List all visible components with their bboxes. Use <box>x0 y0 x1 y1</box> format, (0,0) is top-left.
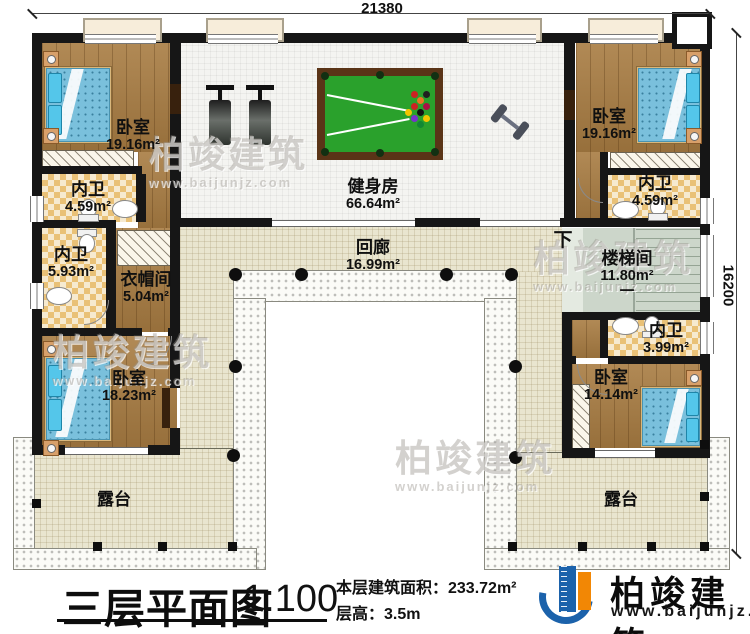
room-label-bedroom-br: 卧室14.14m² <box>584 368 638 403</box>
room-label-terrace-left: 露台 <box>97 490 131 509</box>
nightstand-tl-2 <box>43 128 59 144</box>
door-bedroom-bl <box>162 388 170 428</box>
room-label-bath-tl: 内卫4.59m² <box>65 180 111 215</box>
rail-post <box>508 542 517 551</box>
wall-gym-right <box>564 43 575 226</box>
company-logo-url: www.baijunjz.com <box>611 603 750 621</box>
column <box>505 268 518 281</box>
wall-l1 <box>32 166 142 174</box>
rail-post <box>647 542 656 551</box>
room-label-bedroom-tr: 卧室19.16m² <box>582 107 636 142</box>
closet-cloakroom <box>117 230 177 266</box>
sink-bath-ml <box>46 287 72 305</box>
sink-bath-tl <box>112 200 138 218</box>
courtyard-rail-top <box>233 270 517 302</box>
room-label-bedroom-tl: 卧室19.16m² <box>106 118 160 153</box>
column <box>295 268 308 281</box>
watermark: 柏竣建筑 www.baijunjz.com <box>148 136 308 190</box>
br-terrace-door <box>595 450 655 458</box>
terrace-left-rail-bottom <box>13 548 257 570</box>
window-left-1 <box>30 196 44 222</box>
nightstand-br-1 <box>686 370 702 386</box>
company-logo-name: 柏竣建筑 <box>610 566 750 634</box>
terrace-left-floor <box>33 448 237 550</box>
wall-stairwell-top <box>560 218 710 227</box>
courtyard-rail-left <box>233 298 266 570</box>
rail-post <box>578 542 587 551</box>
plan-title: 三层平面图 <box>62 575 272 634</box>
chimney <box>672 12 712 49</box>
rail-post <box>158 542 167 551</box>
column <box>227 449 240 462</box>
door-bedroom-tl <box>170 84 181 114</box>
room-label-cloakroom: 衣帽间5.04m² <box>121 270 172 305</box>
wall-r6 <box>562 356 576 364</box>
tank-bath-tr <box>648 213 668 221</box>
gym-sliding-door-1 <box>272 220 415 227</box>
rail-post <box>700 542 709 551</box>
wall-bl-bottom-2 <box>148 445 180 455</box>
wall-r7 <box>608 356 710 364</box>
wall-l3 <box>32 220 116 228</box>
room-label-stairwell: 楼梯间11.80m²一 <box>600 249 653 301</box>
rail-post <box>700 440 709 449</box>
courtyard-rail-right <box>484 298 517 570</box>
rail-post <box>700 492 709 501</box>
room-label-bath-ml: 内卫5.93m² <box>48 245 94 280</box>
column <box>440 268 453 281</box>
rail-post <box>93 542 102 551</box>
room-label-bath-tr: 内卫4.59m² <box>632 174 678 209</box>
column <box>229 360 242 373</box>
nightstand-bl-2 <box>43 440 59 456</box>
room-label-corridor: 回廊16.99m² <box>346 238 400 273</box>
column <box>229 268 242 281</box>
company-logo-icon <box>537 562 601 624</box>
window-left-2 <box>30 283 44 309</box>
room-label-bedroom-bl: 卧室18.23m² <box>102 369 156 404</box>
room-label-gym: 健身房66.64m² <box>346 177 400 212</box>
rail-post <box>228 542 237 551</box>
window-right-1 <box>700 198 714 224</box>
bed-br <box>640 386 702 448</box>
bay-glass-4 <box>590 34 658 44</box>
pool-table <box>317 68 443 160</box>
room-label-bath-mr: 内卫3.99m² <box>643 321 689 356</box>
stairs-down-label: 下 <box>553 230 572 251</box>
wall-gym-bottom-1 <box>180 218 272 227</box>
watermark: 柏竣建筑 www.baijunjz.com <box>395 440 555 494</box>
wall-l2 <box>136 174 146 222</box>
window-right-3 <box>700 322 714 354</box>
dim-top-label: 21380 <box>322 0 442 17</box>
floor-height-text: 层高：3.5m <box>336 600 420 624</box>
floor-area-text: 本层建筑面积：233.72m² <box>336 574 517 598</box>
bay-glass-3 <box>469 34 536 44</box>
wall-br-bottom-1 <box>562 448 595 458</box>
door-bedroom-tr <box>564 90 575 120</box>
nightstand-tr-2 <box>686 128 702 144</box>
plan-scale: 1:100 <box>243 578 338 621</box>
bl-terrace-door <box>65 447 148 455</box>
floorplan-canvas: 柏竣建筑 www.baijunjz.com 柏竣建筑 www.baijunjz.… <box>0 0 750 634</box>
nightstand-tl-1 <box>43 51 59 67</box>
wall-l4 <box>106 228 116 330</box>
dim-right-label: 16200 <box>720 256 737 316</box>
wall-gym-bottom-2 <box>415 218 480 227</box>
window-right-2 <box>700 235 714 297</box>
sink-bath-mr <box>612 317 639 335</box>
gym-sliding-door-2 <box>480 220 560 227</box>
wall-br-bottom-2 <box>655 448 710 458</box>
wall-left <box>32 33 42 455</box>
rail-post <box>32 499 41 508</box>
nightstand-tr-1 <box>686 51 702 67</box>
room-label-terrace-right: 露台 <box>604 490 638 509</box>
wall-r3 <box>562 312 710 320</box>
wall-r4 <box>562 312 572 448</box>
wall-r5 <box>600 320 608 358</box>
bay-glass-2 <box>208 34 278 44</box>
bay-glass-1 <box>85 34 156 44</box>
column <box>509 360 522 373</box>
